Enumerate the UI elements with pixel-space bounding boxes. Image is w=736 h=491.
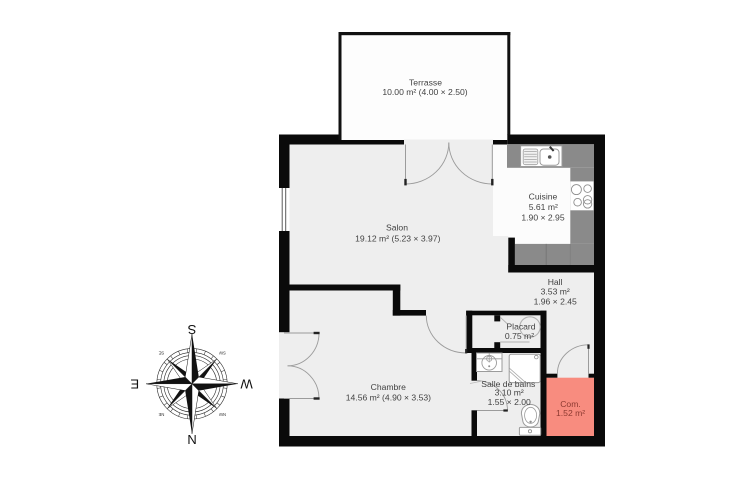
svg-text:3.53 m²: 3.53 m² [541, 286, 570, 296]
svg-text:Placard: Placard [506, 322, 535, 332]
svg-text:S: S [187, 322, 196, 337]
svg-text:1.52 m²: 1.52 m² [556, 408, 585, 418]
svg-text:SW: SW [219, 350, 226, 355]
svg-text:NW: NW [219, 412, 226, 417]
svg-text:Cuisine: Cuisine [529, 192, 558, 202]
svg-text:1.90 × 2.95: 1.90 × 2.95 [521, 212, 564, 222]
svg-text:14.56 m² (4.90 × 3.53): 14.56 m² (4.90 × 3.53) [346, 393, 431, 403]
svg-text:5.61 m²: 5.61 m² [529, 202, 558, 212]
svg-text:19.12 m² (5.23 × 3.97): 19.12 m² (5.23 × 3.97) [355, 233, 440, 243]
svg-text:W: W [240, 376, 253, 391]
svg-text:3.10 m²: 3.10 m² [495, 387, 524, 397]
svg-text:N: N [187, 432, 196, 447]
svg-text:Salon: Salon [386, 223, 408, 233]
svg-text:E: E [130, 376, 139, 391]
svg-text:10.00 m² (4.00 × 2.50): 10.00 m² (4.00 × 2.50) [382, 87, 467, 97]
svg-text:0.75 m²: 0.75 m² [505, 331, 534, 341]
svg-text:1.96 × 2.45: 1.96 × 2.45 [534, 297, 577, 307]
svg-text:Chambre: Chambre [371, 382, 407, 392]
svg-text:Terrasse: Terrasse [409, 77, 442, 87]
svg-text:1.55 × 2.00: 1.55 × 2.00 [488, 397, 531, 407]
svg-text:SE: SE [159, 350, 165, 355]
svg-text:NE: NE [158, 412, 164, 417]
